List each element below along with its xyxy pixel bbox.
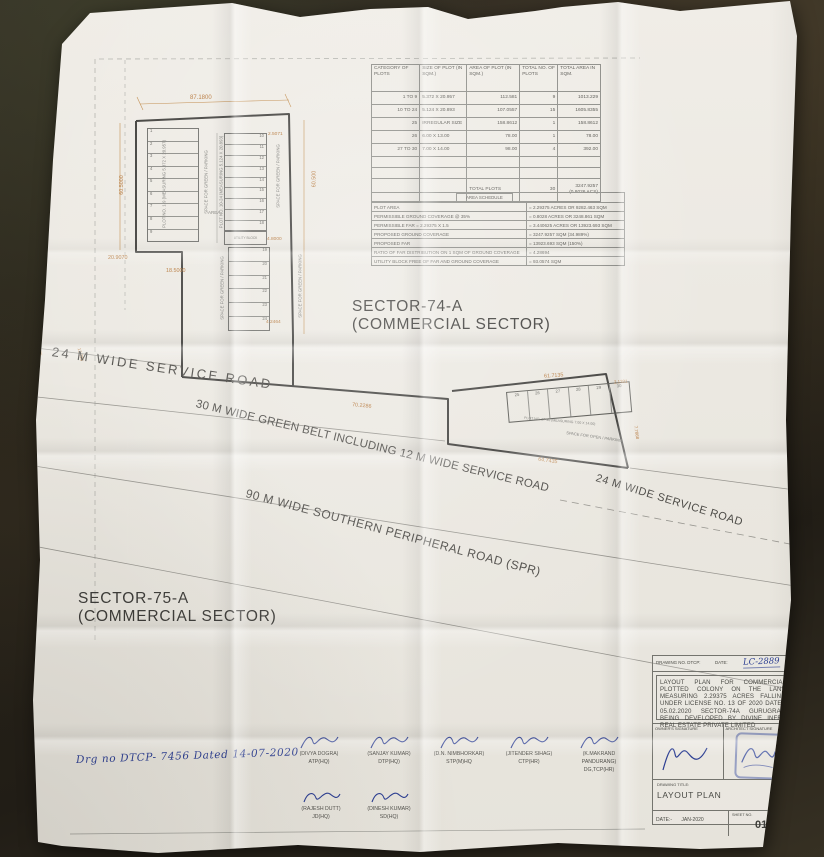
dim-inner: 18.5000 <box>166 268 186 274</box>
architect-stamp <box>734 732 784 780</box>
signature-scribble <box>368 788 410 806</box>
owner-signature-box: OWNER'S SIGNATURE <box>653 724 724 779</box>
area-schedule-row: PERMISSIBLE FAR = 2.29375 X 1.5 = 3.4406… <box>372 221 624 230</box>
plot-schedule-table: CATEGORY OF PLOTS SIZE OF PLOT (IN SQM.)… <box>371 64 601 202</box>
signatory-title: DG,TCP(HR) <box>568 767 630 775</box>
signatory-name: (DIVYA DOGRA) <box>288 751 350 759</box>
plot-column-1-9: 123456789 <box>147 128 199 242</box>
plot-cell: 5 <box>148 179 198 192</box>
date-value: JAN-2020 <box>681 817 703 823</box>
signatory-name: (DINESH KUMAR) <box>358 806 420 814</box>
signatory-title: ATP(HQ) <box>288 759 350 767</box>
table-header: TOTAL AREA IN SQM. <box>558 65 601 92</box>
plot-cell: 13 <box>225 167 266 178</box>
signatory: (SANJAY KUMAR) DTP(HQ) <box>358 733 420 774</box>
signature-scribble <box>508 733 550 751</box>
plot-cell: 30 <box>609 382 631 413</box>
dim-lower-right-a: 2.1331 <box>614 379 628 385</box>
signatories-row-2: (RAJESH DUTT) JD(HQ) (DINESH KUMAR) SD(H… <box>290 788 420 822</box>
signatory-name: (K.MAKRAND PANDURANG) <box>568 751 630 767</box>
signatory: (RAJESH DUTT) JD(HQ) <box>290 788 352 822</box>
signature-scribble <box>300 788 342 806</box>
photo-scene: 123456789 101112131415161718 UTILITY BLO… <box>0 0 824 857</box>
signature-scribble <box>298 733 340 751</box>
signatory: (JITENDER SIHAG) CTP(HR) <box>498 733 560 774</box>
dim-corner-a: 2.5071 <box>268 132 283 137</box>
area-label: AREA <box>208 210 220 215</box>
table-header: TOTAL NO. OF PLOTS <box>520 65 558 92</box>
signatory: (DINESH KUMAR) SD(HQ) <box>358 788 420 822</box>
road-lines <box>28 347 795 690</box>
space-green-label-2: SPACE FOR GREEN / PARKING <box>276 144 281 208</box>
paper-sheet: 123456789 101112131415161718 UTILITY BLO… <box>0 0 824 857</box>
table-row: 25 IRREGULAR SIZE 158.8612 1 158.8612 <box>372 118 601 131</box>
plot-cell: 1 <box>148 129 198 142</box>
area-schedule-title: AREA SCHEDULE <box>456 193 513 201</box>
plot-cell: 24 <box>229 317 269 330</box>
signatory: (D.N. NIMBHORKAR) STP(M)HQ <box>428 733 490 774</box>
area-schedule-table: AREA SCHEDULE PLOT AREA = 2.29375 ACRES … <box>371 192 625 266</box>
sheet-no-label: SHEET NO. <box>732 813 752 817</box>
space-green-label-1: SPACE FOR GREEN / PARKING <box>204 150 209 214</box>
signature-scribble <box>438 733 480 751</box>
plot-cell: 20 <box>229 262 269 276</box>
drawing-no-handwritten: LC-2889 <box>743 656 780 668</box>
date-label: DATE: <box>715 660 728 665</box>
plot-cell: 4 <box>148 167 198 180</box>
table-row: 27 TO 30 7.00 X 14.00 98.00 4 392.00 <box>372 144 601 157</box>
table-row: 26 6.00 X 13.00 78.00 1 78.00 <box>372 131 601 144</box>
table-header: AREA OF PLOT (IN SQM.) <box>467 65 520 92</box>
plot-cell: 22 <box>229 289 269 303</box>
signatory-title: DTP(HQ) <box>358 759 420 767</box>
plot-cell: 8 <box>148 217 198 230</box>
signatory-title: STP(M)HQ <box>428 759 490 767</box>
date-label-bottom: DATE:- <box>656 817 672 823</box>
sector-74a-title: SECTOR-74-A (COMMERCIAL SECTOR) <box>352 298 551 334</box>
dim-step: 20.9070 <box>108 255 128 261</box>
plot-1-9-label: PLOT NO. 1-9 (MEASURING 5.372 X 20.957) <box>162 140 167 228</box>
space-green-label-4: SPACE FOR GREEN / PARKING <box>298 254 303 318</box>
bottom-rule <box>70 829 645 834</box>
owner-signature-scribble <box>659 740 711 774</box>
plot-cell: 29 <box>589 384 612 415</box>
signatory-name: (RAJESH DUTT) <box>290 806 352 814</box>
space-green-label-3: SPACE FOR GREEN / PARKING <box>220 256 225 320</box>
plot-cell: 9 <box>148 230 198 242</box>
sector-75a-title: SECTOR-75-A (COMMERCIAL SECTOR) <box>78 590 277 626</box>
project-description: LAYOUT PLAN FOR COMMERCIAL PLOTTED COLON… <box>656 675 790 720</box>
plot-cell: 26 <box>528 389 551 420</box>
plot-column-19-24: 192021222324 <box>228 247 270 331</box>
plot-cell: 2 <box>148 142 198 155</box>
table-row: 10 TO 24 5.124 X 20.893 107.0557 15 1605… <box>372 105 601 118</box>
plot-cell: 19 <box>229 248 269 262</box>
drawing-title-label: DRAWING TITLE: <box>657 782 789 787</box>
area-schedule-row: PROPOSED FAR = 13923.693 SQM (150%) <box>372 239 624 248</box>
signatory-name: (JITENDER SIHAG) <box>498 751 560 759</box>
signatory-title: SD(HQ) <box>358 814 420 822</box>
dim-top: 87.1800 <box>190 95 212 101</box>
signatory-name: (SANJAY KUMAR) <box>358 751 420 759</box>
architect-signature-box: ARCHITECT SIGNATURE <box>724 724 794 779</box>
plot-cell: 27 <box>548 388 571 419</box>
dim-corner-c: 4.2464 <box>266 320 281 325</box>
sheet-no-value: 01A <box>755 819 775 831</box>
signatory: (DIVYA DOGRA) ATP(HQ) <box>288 733 350 774</box>
table-row: 1 TO 9 5.372 X 20.957 112.581 9 1013.229 <box>372 92 601 105</box>
signatories-row-1: (DIVYA DOGRA) ATP(HQ) (SANJAY KUMAR) DTP… <box>288 733 630 774</box>
architect-signature-scribble <box>737 736 778 775</box>
title-block: DRAWING NO. DTCP: DATE: LC-2889 LAYOUT P… <box>652 655 794 825</box>
dim-left: 60.5000 <box>119 175 125 195</box>
table-header: SIZE OF PLOT (IN SQM.) <box>420 65 467 92</box>
plot-cell: 23 <box>229 303 269 317</box>
table-header: CATEGORY OF PLOTS <box>372 65 420 92</box>
dim-corner-b: 4.8000 <box>267 237 282 242</box>
plot-cell: 28 <box>568 386 591 417</box>
plot-cell: 6 <box>148 192 198 205</box>
signatory-name: (D.N. NIMBHORKAR) <box>428 751 490 759</box>
plot-cell: 21 <box>229 276 269 290</box>
dim-right: 60.500 <box>311 171 317 188</box>
area-schedule-row: PERMISSIBLE GROUND COVERAGE @ 35% = 0.80… <box>372 212 624 221</box>
drawing-no-label: DRAWING NO. DTCP: <box>656 660 700 665</box>
signatory: (K.MAKRAND PANDURANG) DG,TCP(HR) <box>568 733 630 774</box>
area-schedule-row: PROPOSED GROUND COVERAGE = 3247.9257 SQM… <box>372 230 624 239</box>
plot-column-10-18: 101112131415161718 <box>224 133 267 232</box>
signatory-title: CTP(HR) <box>498 759 560 767</box>
area-schedule-row: RATIO OF FAR DISTRIBUTION ON 1 SQM OF GR… <box>372 248 624 257</box>
utility-block-cell: UTILITY BLOCK <box>224 230 267 245</box>
signatory-title: JD(HQ) <box>290 814 352 822</box>
drawing-title: LAYOUT PLAN <box>657 790 789 800</box>
area-schedule-row: UTILITY BLOCK FREE OF FAR AND GROUND COV… <box>372 257 624 265</box>
area-schedule-row: PLOT AREA = 2.29375 ACRES OR 9282.463 SQ… <box>372 203 624 212</box>
plot-cell: 3 <box>148 154 198 167</box>
signature-scribble <box>578 733 620 751</box>
signature-scribble <box>368 733 410 751</box>
plot-cell: 7 <box>148 204 198 217</box>
